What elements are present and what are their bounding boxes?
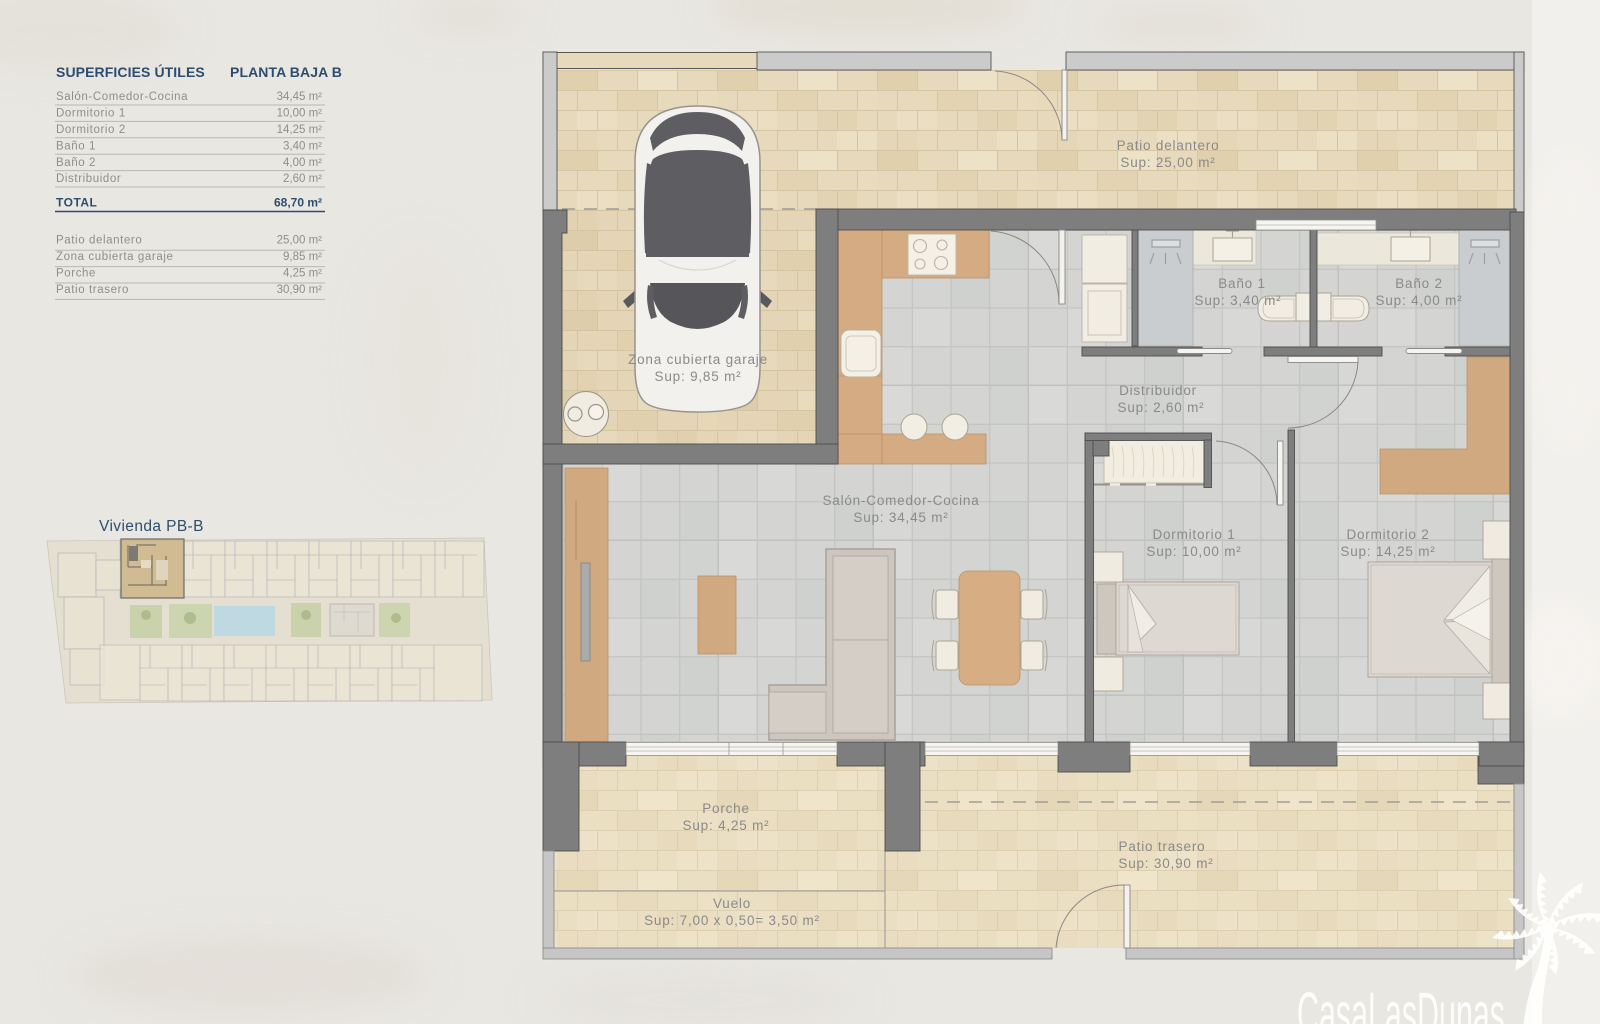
svg-text:Sup: 4,25 m²: Sup: 4,25 m² — [683, 818, 770, 833]
svg-text:Sup: 30,90 m²: Sup: 30,90 m² — [1118, 856, 1213, 871]
svg-text:10,00 m²: 10,00 m² — [277, 108, 323, 120]
svg-text:Salón-Comedor-Cocina: Salón-Comedor-Cocina — [822, 493, 979, 508]
svg-text:Patio trasero: Patio trasero — [1119, 839, 1206, 854]
svg-text:Patio delantero: Patio delantero — [1117, 138, 1220, 153]
svg-text:Sup: 9,85 m²: Sup: 9,85 m² — [655, 369, 742, 384]
svg-text:Vivienda PB-B: Vivienda PB-B — [99, 518, 204, 535]
svg-text:2,60 m²: 2,60 m² — [283, 173, 322, 185]
svg-text:Sup: 4,00 m²: Sup: 4,00 m² — [1376, 293, 1463, 308]
svg-text:25,00 m²: 25,00 m² — [277, 235, 323, 247]
svg-text:TOTAL: TOTAL — [56, 196, 97, 210]
svg-text:Sup: 25,00 m²: Sup: 25,00 m² — [1120, 155, 1215, 170]
svg-text:SUPERFICIES ÚTILES: SUPERFICIES ÚTILES — [56, 63, 205, 80]
svg-text:Salón-Comedor-Cocina: Salón-Comedor-Cocina — [56, 91, 188, 103]
svg-text:34,45 m²: 34,45 m² — [277, 91, 323, 103]
svg-text:14,25 m²: 14,25 m² — [277, 124, 323, 136]
svg-text:4,00 m²: 4,00 m² — [283, 157, 322, 169]
svg-text:Distribuidor: Distribuidor — [1119, 383, 1197, 398]
svg-text:Porche: Porche — [702, 801, 750, 816]
svg-text:Baño 2: Baño 2 — [56, 157, 96, 169]
svg-text:Sup: 3,40 m²: Sup: 3,40 m² — [1195, 293, 1282, 308]
svg-text:Sup: 7,00 x 0,50= 3,50 m²: Sup: 7,00 x 0,50= 3,50 m² — [644, 913, 820, 928]
svg-text:PLANTA BAJA B: PLANTA BAJA B — [230, 64, 342, 80]
svg-text:Sup: 34,45 m²: Sup: 34,45 m² — [853, 510, 948, 525]
svg-text:Dormitorio 1: Dormitorio 1 — [56, 108, 126, 120]
svg-text:30,90 m²: 30,90 m² — [277, 284, 323, 296]
svg-text:3,40 m²: 3,40 m² — [283, 140, 322, 152]
svg-text:68,70 m²: 68,70 m² — [274, 196, 322, 210]
svg-text:Zona cubierta garaje: Zona cubierta garaje — [628, 352, 768, 367]
svg-text:Zona cubierta garaje: Zona cubierta garaje — [56, 251, 173, 263]
svg-text:Baño 1: Baño 1 — [56, 140, 96, 152]
svg-text:4,25 m²: 4,25 m² — [283, 268, 322, 280]
svg-text:Dormitorio 1: Dormitorio 1 — [1152, 527, 1235, 542]
svg-text:Vuelo: Vuelo — [713, 896, 751, 911]
svg-text:Distribuidor: Distribuidor — [56, 173, 121, 185]
svg-text:Sup: 14,25 m²: Sup: 14,25 m² — [1340, 544, 1435, 559]
svg-text:Porche: Porche — [56, 268, 96, 280]
svg-text:Sup: 10,00 m²: Sup: 10,00 m² — [1146, 544, 1241, 559]
svg-text:9,85 m²: 9,85 m² — [283, 251, 322, 263]
svg-text:Baño 2: Baño 2 — [1395, 276, 1443, 291]
svg-text:Baño 1: Baño 1 — [1218, 276, 1266, 291]
svg-text:CasaLasDunas: CasaLasDunas — [1297, 980, 1505, 1024]
svg-text:Patio delantero: Patio delantero — [56, 235, 142, 247]
svg-text:Patio trasero: Patio trasero — [56, 284, 129, 296]
svg-text:Sup: 2,60 m²: Sup: 2,60 m² — [1118, 400, 1205, 415]
svg-text:Dormitorio 2: Dormitorio 2 — [1346, 527, 1429, 542]
svg-text:Dormitorio 2: Dormitorio 2 — [56, 124, 126, 136]
